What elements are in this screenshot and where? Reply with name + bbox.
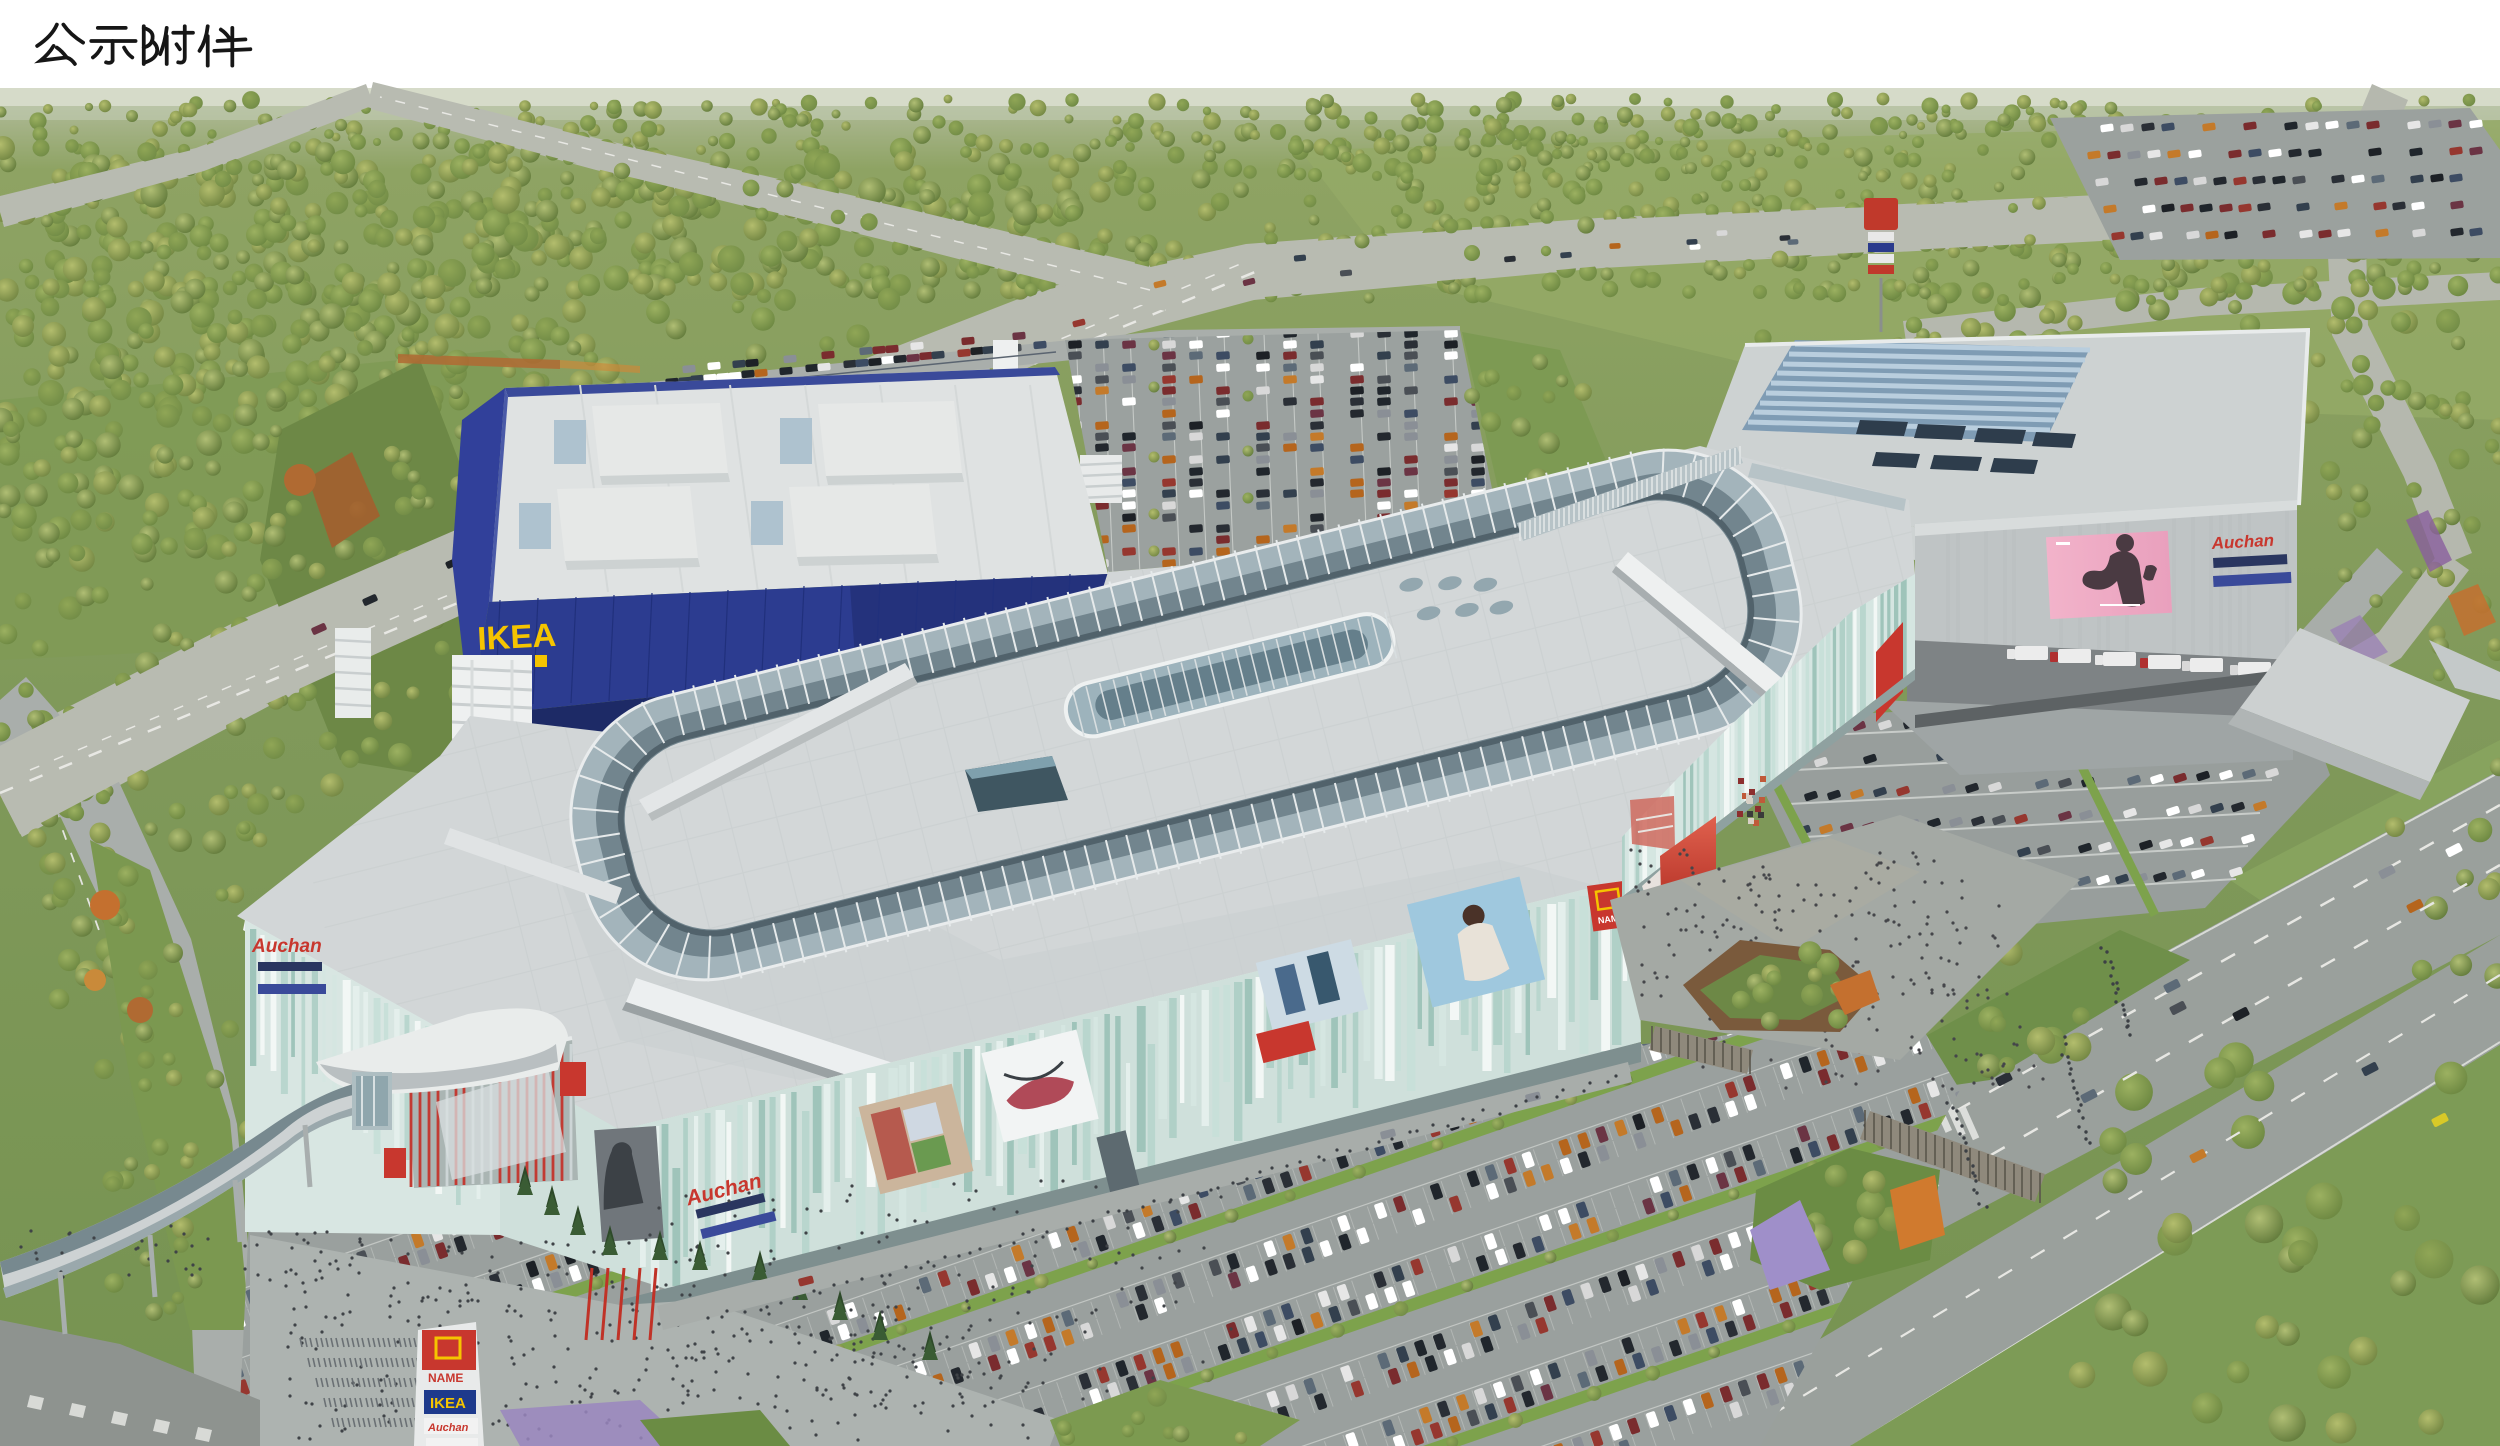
svg-text:Auchan: Auchan xyxy=(251,936,322,957)
svg-text:IKEA: IKEA xyxy=(430,1395,466,1412)
svg-text:Auchan: Auchan xyxy=(2210,531,2274,553)
svg-text:Auchan: Auchan xyxy=(427,1422,469,1434)
svg-text:IKEA: IKEA xyxy=(476,616,557,657)
svg-text:NAME: NAME xyxy=(428,1371,463,1385)
